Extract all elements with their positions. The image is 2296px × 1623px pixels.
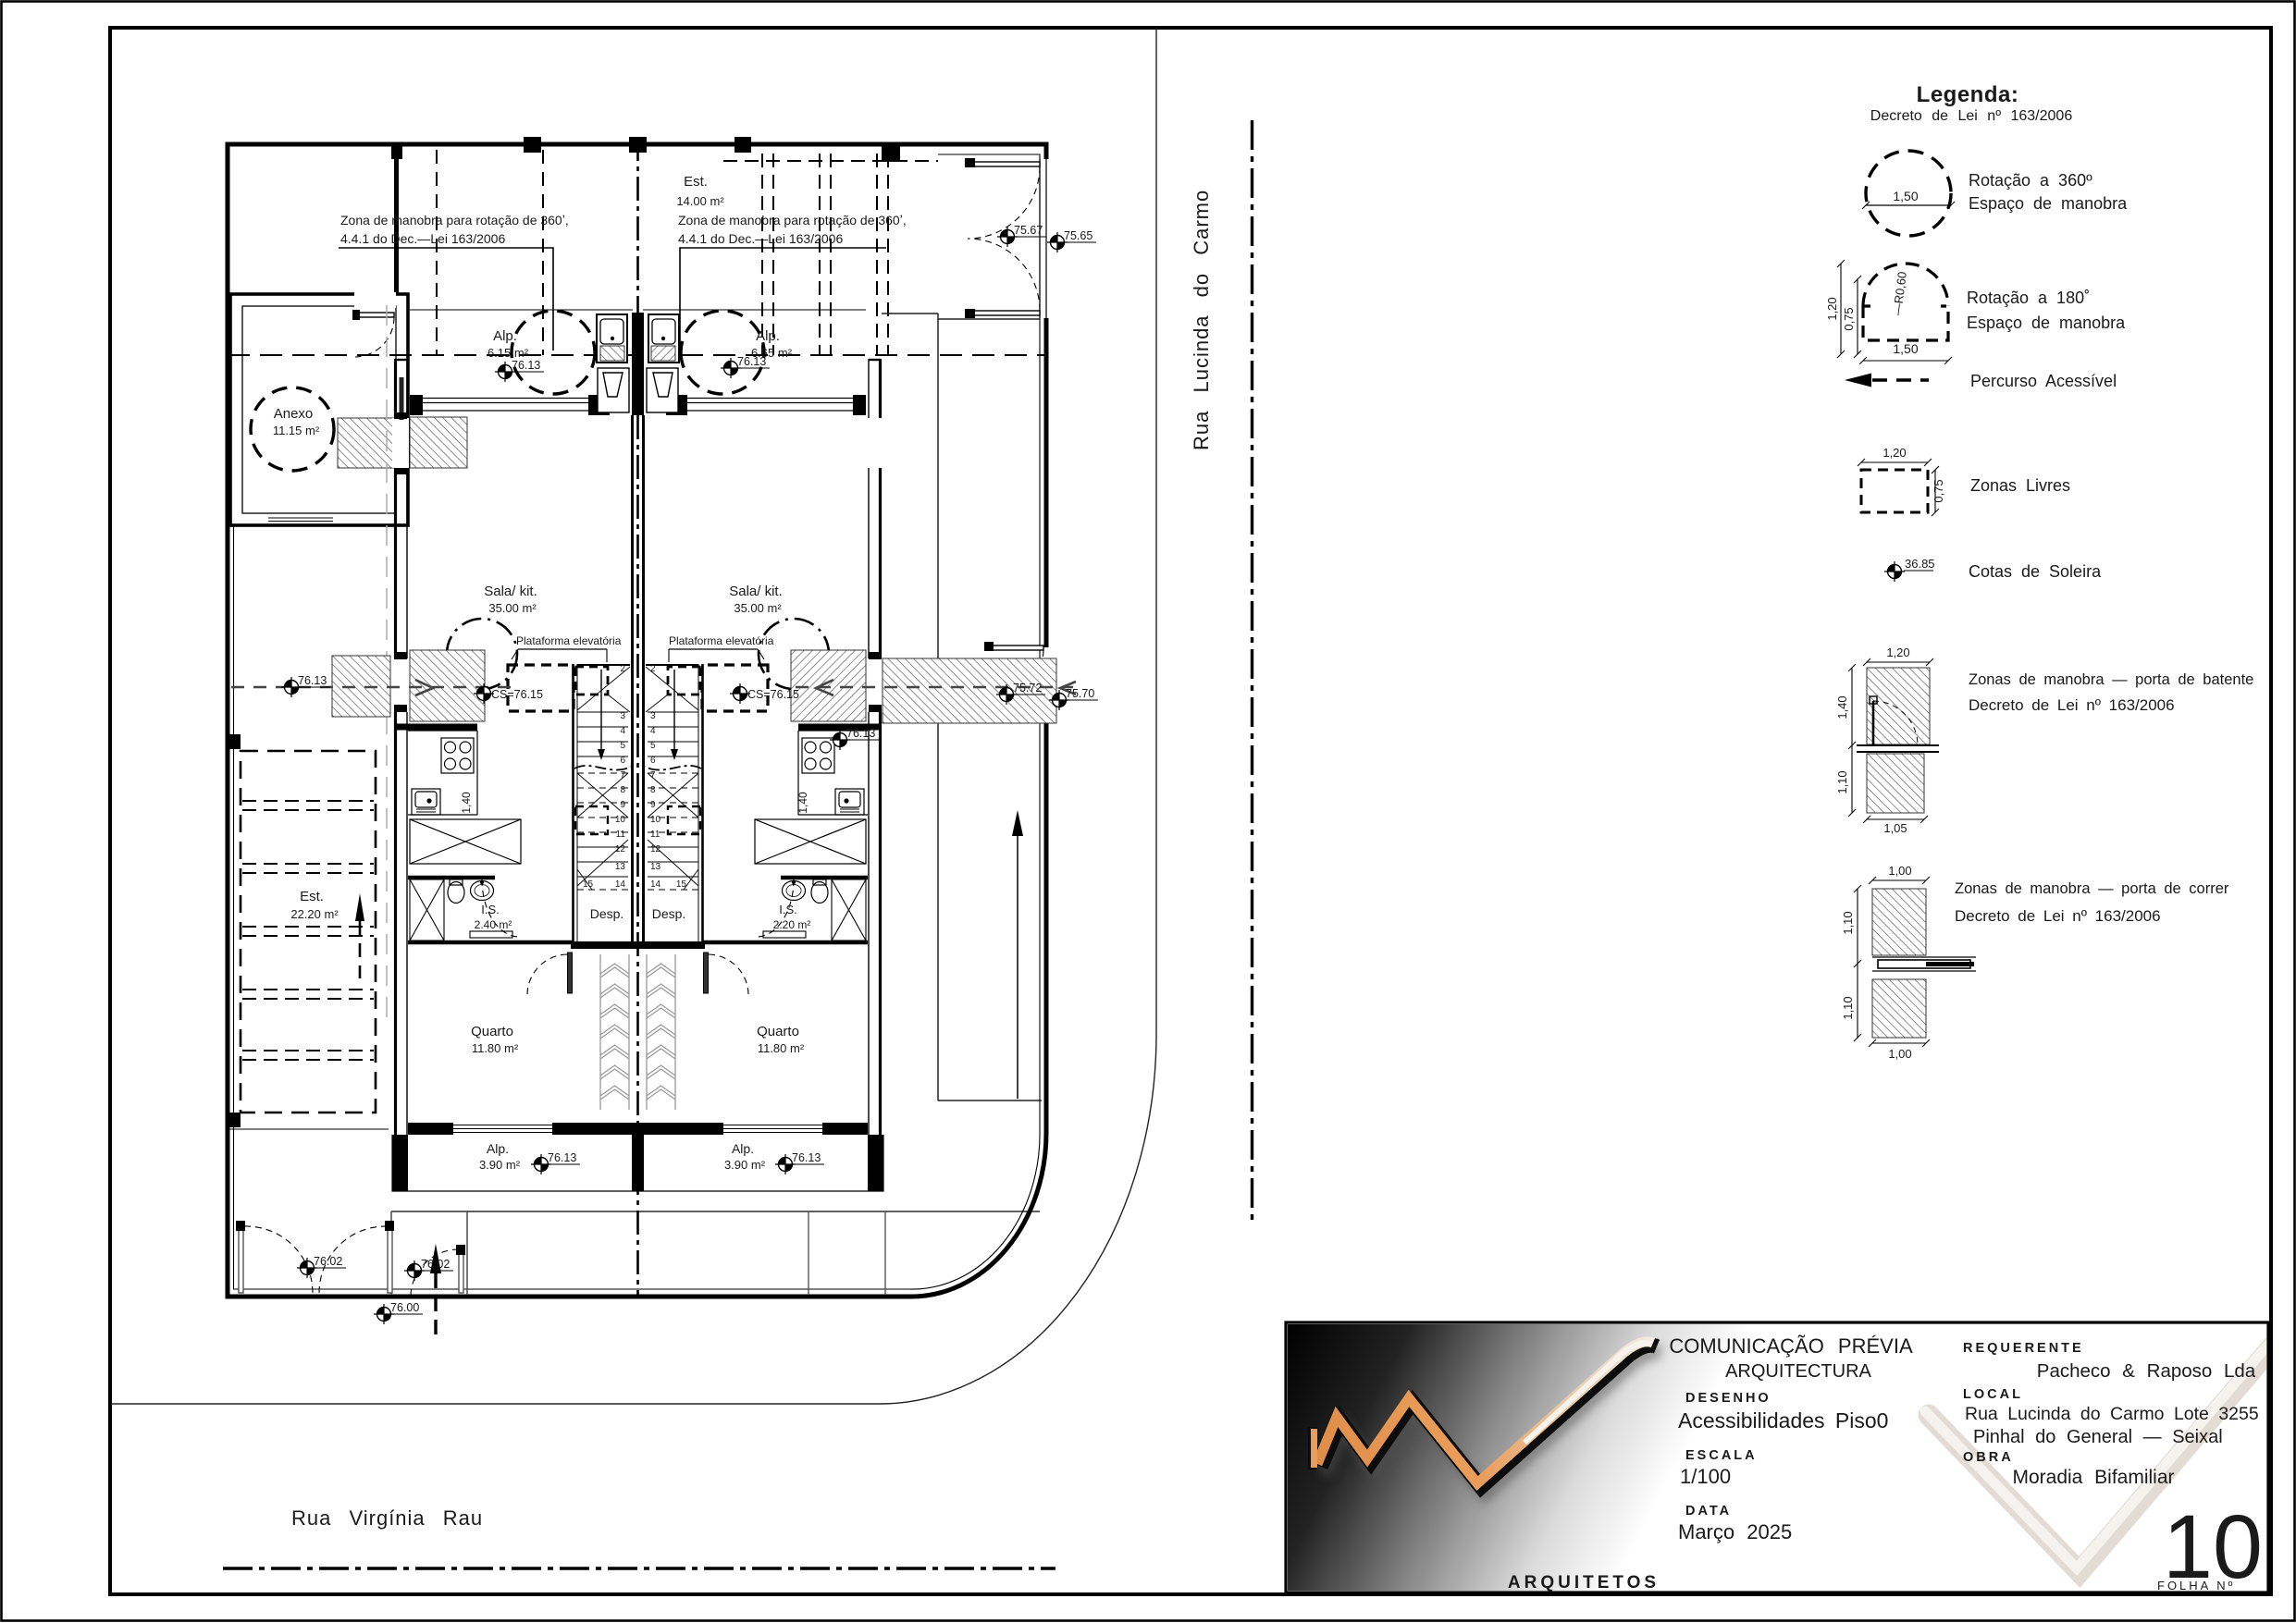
svg-text:Cotas de Soleira: Cotas de Soleira: [1969, 562, 2102, 581]
svg-text:8: 8: [650, 785, 656, 795]
svg-text:2.40 m²: 2.40 m²: [475, 918, 512, 931]
svg-text:Pacheco & Raposo Lda: Pacheco & Raposo Lda: [2037, 1360, 2256, 1382]
svg-text:REQUERENTE: REQUERENTE: [1963, 1341, 2084, 1356]
svg-text:1,50: 1,50: [1893, 341, 1918, 356]
svg-text:0,75: 0,75: [1842, 307, 1856, 330]
svg-text:Alp.: Alp.: [493, 328, 517, 344]
svg-text:14: 14: [650, 879, 661, 890]
svg-text:7: 7: [650, 770, 656, 781]
svg-text:3: 3: [620, 711, 625, 721]
svg-text:DATA: DATA: [1685, 1504, 1732, 1518]
svg-text:6.65 m²: 6.65 m²: [751, 346, 793, 360]
svg-text:1,00: 1,00: [1888, 864, 1911, 878]
svg-text:Decreto de Lei nº 163/2006: Decreto de Lei nº 163/2006: [1955, 907, 2161, 925]
svg-text:Est.: Est.: [684, 174, 708, 190]
svg-text:Alp.: Alp.: [756, 328, 780, 344]
svg-text:14: 14: [615, 879, 626, 890]
svg-text:1,40: 1,40: [460, 792, 473, 814]
svg-text:Zona de manobra para rotaç: Zona de manobra para rotação de 360ʼ,: [678, 213, 907, 227]
svg-text:1,20: 1,20: [1882, 446, 1906, 460]
svg-text:Anexo: Anexo: [274, 406, 314, 422]
svg-text:6.15 m²: 6.15 m²: [488, 346, 529, 360]
svg-text:CS=76.15: CS=76.15: [491, 688, 543, 701]
svg-text:4.4.1 do Dec.—Lei 163/2006: 4.4.1 do Dec.—Lei 163/2006: [678, 231, 843, 246]
svg-text:Rua Lucinda do Carmo: Rua Lucinda do Carmo: [1190, 190, 1213, 450]
svg-text:75.72: 75.72: [1013, 682, 1042, 695]
svg-text:LOCAL: LOCAL: [1963, 1387, 2023, 1402]
svg-text:Pinhal do General — Seixal: Pinhal do General — Seixal: [1973, 1427, 2223, 1447]
svg-text:Rotação a 180˚: Rotação a 180˚: [1967, 289, 2090, 307]
svg-text:Quarto: Quarto: [471, 1024, 513, 1039]
svg-text:COMUNICAÇÃO PRÉVIA: COMUNICAÇÃO PRÉVIA: [1669, 1334, 1913, 1358]
svg-text:12: 12: [650, 844, 661, 855]
svg-text:DESENHO: DESENHO: [1685, 1391, 1771, 1406]
svg-text:1,40: 1,40: [1835, 695, 1849, 719]
svg-text:Plataforma elevatória: Plataforma elevatória: [669, 634, 774, 647]
svg-text:5: 5: [620, 741, 625, 751]
svg-text:3: 3: [650, 711, 656, 721]
svg-text:12: 12: [615, 844, 626, 855]
svg-text:9: 9: [650, 800, 656, 810]
svg-text:ESCALA: ESCALA: [1685, 1448, 1758, 1463]
svg-text:11.80 m²: 11.80 m²: [758, 1041, 805, 1055]
svg-text:76.02: 76.02: [314, 1255, 342, 1268]
svg-text:ARQUITECTURA: ARQUITECTURA: [1725, 1361, 1871, 1382]
svg-text:22.20 m²: 22.20 m²: [290, 907, 339, 921]
svg-text:10: 10: [615, 815, 626, 825]
svg-text:11.15 m²: 11.15 m²: [273, 424, 320, 437]
svg-text:FOLHA Nº: FOLHA Nº: [2157, 1579, 2235, 1592]
svg-text:6: 6: [650, 756, 656, 766]
svg-text:76.00: 76.00: [390, 1301, 419, 1314]
svg-text:76.13: 76.13: [298, 674, 327, 687]
svg-text:14.00 m²: 14.00 m²: [676, 194, 724, 208]
svg-text:I.S.: I.S.: [481, 903, 500, 916]
svg-text:75.70: 75.70: [1066, 687, 1094, 700]
svg-text:Percurso Acessível: Percurso Acessível: [1970, 372, 2117, 390]
svg-text:Moradia Bifamiliar: Moradia Bifamiliar: [2012, 1467, 2174, 1488]
svg-text:4: 4: [620, 726, 625, 736]
svg-text:Desp.: Desp.: [652, 906, 686, 921]
svg-text:Plataforma elevatória: Plataforma elevatória: [516, 634, 622, 647]
svg-text:Março 2025: Março 2025: [1678, 1520, 1792, 1543]
svg-text:Zonas de manobra — porta: Zonas de manobra — porta de batente: [1969, 671, 2253, 688]
svg-text:35.00 m²: 35.00 m²: [734, 601, 782, 615]
svg-text:1,20: 1,20: [1825, 297, 1839, 320]
svg-text:Alp.: Alp.: [732, 1141, 754, 1156]
svg-text:6: 6: [620, 756, 625, 766]
svg-text:Decreto de Lei nº 163/2006: Decreto de Lei nº 163/2006: [1969, 696, 2175, 714]
svg-text:Rotação a 360º: Rotação a 360º: [1969, 171, 2092, 190]
svg-text:13: 13: [615, 862, 626, 872]
svg-text:Espaço de manobra: Espaço de manobra: [1967, 314, 2126, 332]
svg-text:2: 2: [620, 664, 625, 674]
svg-text:2: 2: [650, 664, 656, 674]
svg-text:I.S.: I.S.: [779, 903, 797, 916]
svg-text:3.90 m²: 3.90 m²: [724, 1158, 766, 1172]
svg-text:11.80 m²: 11.80 m²: [472, 1041, 519, 1055]
svg-text:15: 15: [676, 879, 687, 890]
svg-text:4: 4: [650, 726, 656, 736]
svg-text:75.65: 75.65: [1064, 229, 1092, 242]
svg-text:Zonas de manobra — porta: Zonas de manobra — porta de correr: [1955, 880, 2229, 897]
svg-text:0,75: 0,75: [1932, 479, 1945, 502]
svg-text:76.13: 76.13: [846, 727, 875, 740]
svg-text:1,10: 1,10: [1841, 996, 1855, 1019]
svg-text:Zona de manobra para rotaç: Zona de manobra para rotação de 360ʼ,: [340, 213, 569, 227]
svg-text:Acessibilidades Piso0: Acessibilidades Piso0: [1678, 1408, 1888, 1432]
svg-text:1,40: 1,40: [796, 792, 809, 814]
svg-text:CS=76.15: CS=76.15: [747, 688, 799, 701]
svg-text:Alp.: Alp.: [487, 1141, 509, 1156]
svg-text:36.85: 36.85: [1905, 557, 1935, 571]
svg-text:4.4.1 do Dec.—Lei 163/2006: 4.4.1 do Dec.—Lei 163/2006: [340, 231, 505, 246]
svg-text:76.13: 76.13: [792, 1151, 821, 1164]
svg-text:Est.: Est.: [300, 889, 324, 904]
svg-text:3.90 m²: 3.90 m²: [479, 1158, 521, 1172]
svg-text:1,20: 1,20: [1886, 646, 1909, 659]
svg-text:Desp.: Desp.: [590, 906, 624, 921]
svg-text:1,50: 1,50: [1893, 189, 1918, 203]
svg-text:Legenda:: Legenda:: [1917, 82, 2019, 107]
svg-text:ARQUITETOS: ARQUITETOS: [1508, 1573, 1660, 1592]
svg-text:8: 8: [620, 785, 625, 795]
svg-text:Rua Virgínia Rau: Rua Virgínia Rau: [291, 1506, 483, 1530]
svg-text:Sala/ kit.: Sala/ kit.: [484, 584, 537, 599]
svg-text:1/100: 1/100: [1680, 1465, 1731, 1488]
svg-text:76.02: 76.02: [421, 1258, 450, 1271]
svg-text:7: 7: [620, 770, 625, 781]
svg-text:10: 10: [650, 815, 661, 825]
svg-text:2.20 m²: 2.20 m²: [773, 918, 811, 931]
svg-text:Quarto: Quarto: [757, 1024, 799, 1039]
svg-text:9: 9: [620, 800, 625, 810]
svg-text:Zonas Livres: Zonas Livres: [1970, 476, 2070, 495]
svg-text:Decreto de Lei nº 163/2006: Decreto de Lei nº 163/2006: [1870, 108, 2073, 124]
svg-text:1,10: 1,10: [1841, 911, 1855, 934]
svg-text:75.67: 75.67: [1014, 224, 1043, 237]
svg-text:76.13: 76.13: [548, 1151, 576, 1164]
svg-text:76.13: 76.13: [512, 359, 540, 372]
svg-text:35.00 m²: 35.00 m²: [488, 601, 537, 615]
svg-text:13: 13: [650, 862, 661, 872]
svg-text:Espaço de manobra: Espaço de manobra: [1969, 194, 2128, 213]
svg-text:11: 11: [650, 830, 660, 840]
svg-text:1,00: 1,00: [1888, 1047, 1911, 1061]
svg-text:1,10: 1,10: [1835, 770, 1849, 793]
svg-text:15: 15: [583, 879, 594, 890]
svg-text:11: 11: [616, 830, 626, 840]
svg-text:Sala/ kit.: Sala/ kit.: [729, 584, 783, 599]
svg-text:OBRA: OBRA: [1963, 1450, 2014, 1465]
svg-text:5: 5: [650, 741, 656, 751]
svg-text:Rua Lucinda do Carmo Lote: Rua Lucinda do Carmo Lote 3255: [1965, 1404, 2259, 1424]
svg-text:1,05: 1,05: [1883, 821, 1907, 835]
